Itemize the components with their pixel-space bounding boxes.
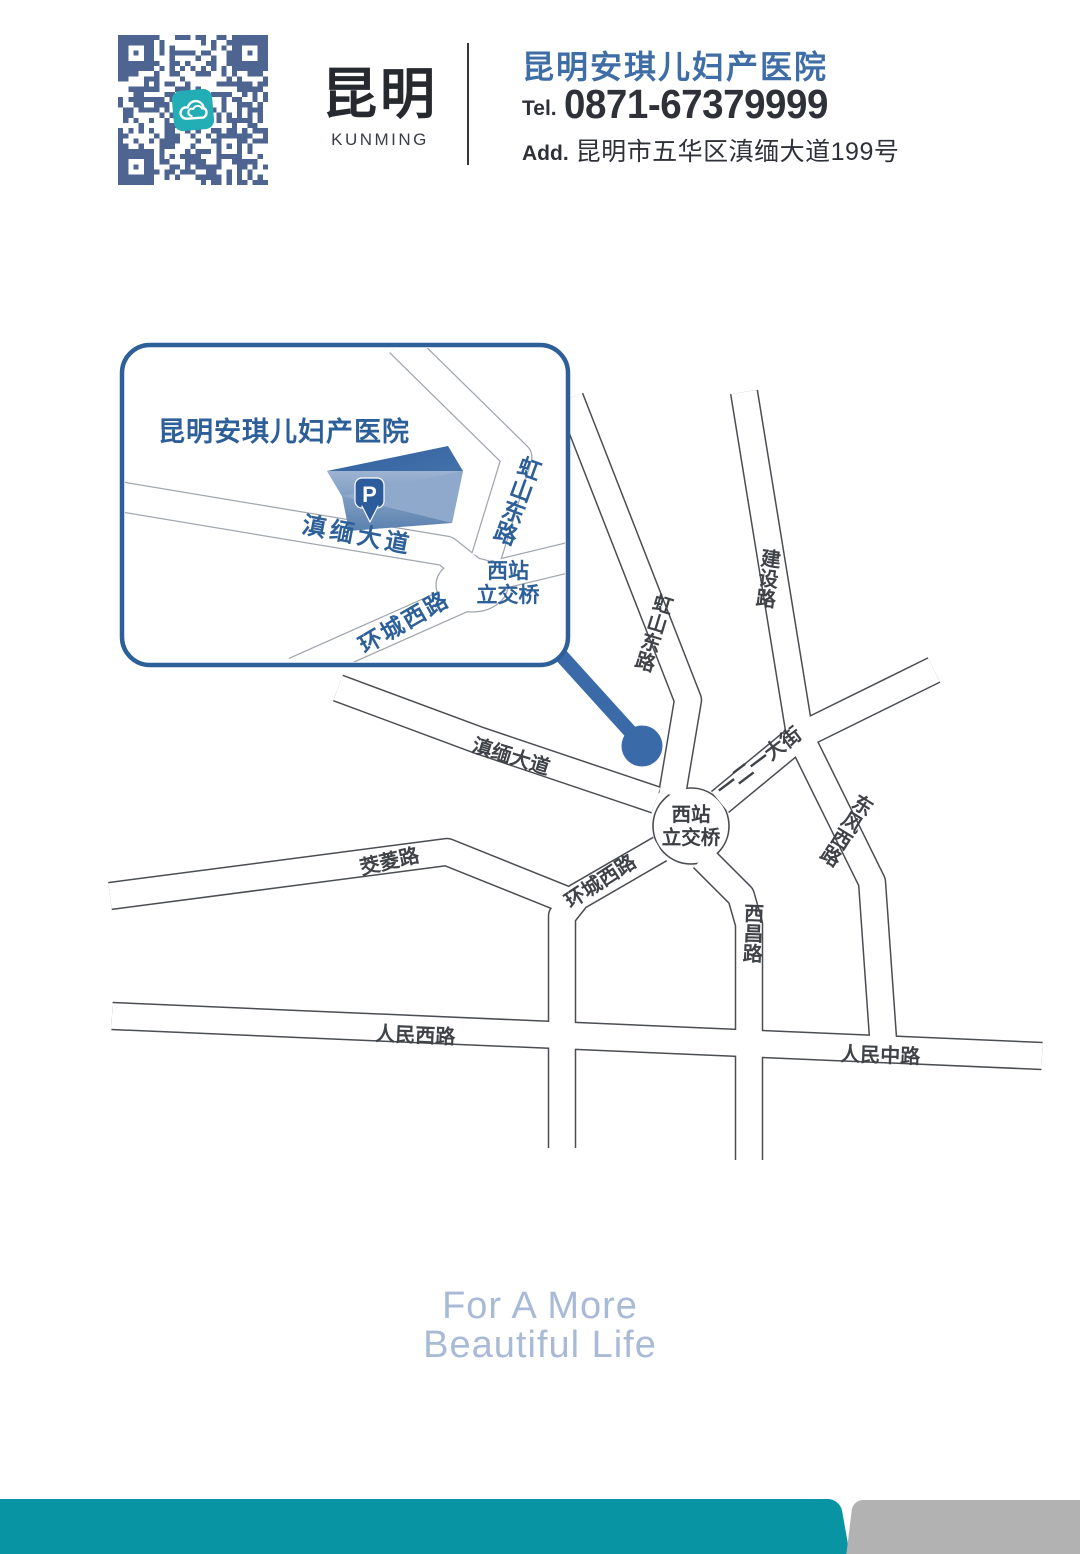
contact-address: Add. 昆明市五华区滇缅大道199号	[522, 132, 899, 168]
label-junction-line2: 立交桥	[662, 826, 721, 849]
inset-label-junction-line1: 西站	[487, 559, 529, 583]
cloud-icon	[169, 86, 217, 134]
city-name-cn: 昆明	[322, 64, 438, 125]
city-name-en: KUNMING	[322, 130, 438, 150]
poster-page: 建设路 虹山东路 一二一大街 滇缅大道 东风西路 西昌路 环城西路 茭菱路 人民…	[0, 0, 1080, 1554]
footer-gray-bar	[846, 1500, 1080, 1554]
tel-number: 0871-67379999	[564, 84, 828, 125]
inset-title: 昆明安琪儿妇产医院	[158, 416, 410, 447]
qr-code	[118, 35, 268, 185]
roundabout-west-station	[653, 788, 729, 864]
slogan: For A More Beautiful Life	[0, 1287, 1080, 1365]
footer-teal-bar	[0, 1499, 850, 1554]
slogan-line1: For A More	[0, 1287, 1080, 1326]
contact-phone: Tel. 0871-67379999	[522, 84, 844, 125]
label-renmin-middle-road: 人民中路	[840, 1042, 922, 1069]
inset-label-junction-line2: 立交桥	[477, 583, 541, 607]
parking-label: P	[362, 482, 377, 507]
address-label: Add.	[522, 142, 569, 168]
address-text: 昆明市五华区滇缅大道199号	[576, 132, 900, 168]
label-yieryi-street: 一二一大街	[712, 722, 806, 801]
label-xichang-road: 西昌路	[739, 903, 764, 964]
slogan-line2: Beautiful Life	[0, 1326, 1080, 1365]
header-divider	[467, 43, 469, 165]
label-junction-line1: 西站	[671, 803, 711, 826]
label-renmin-west-road: 人民西路	[375, 1021, 457, 1049]
tel-label: Tel.	[522, 97, 557, 125]
